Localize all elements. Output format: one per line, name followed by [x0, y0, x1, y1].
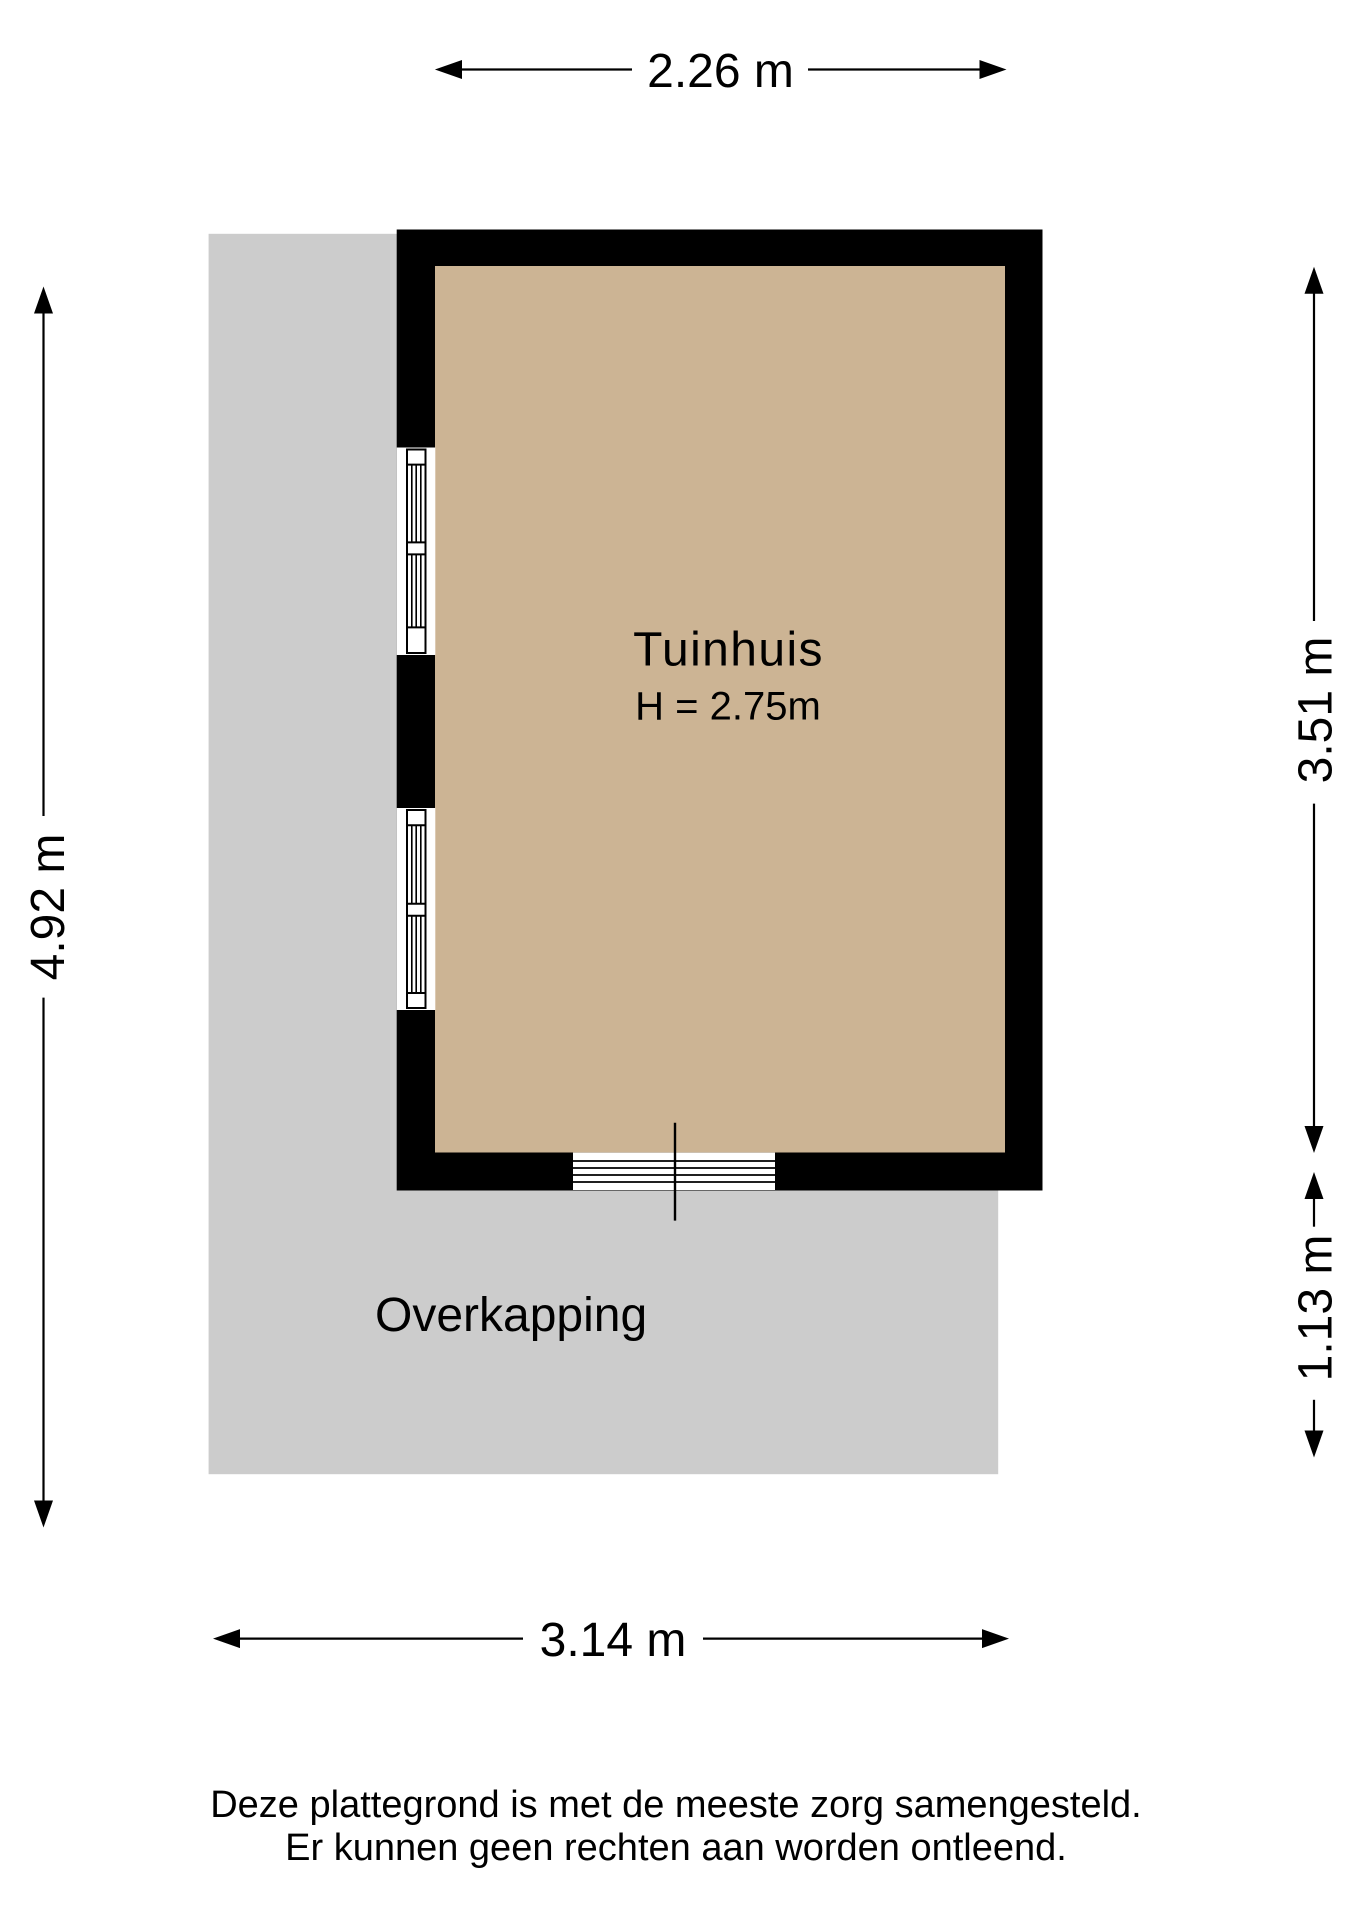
svg-text:3.14 m: 3.14 m [540, 1614, 687, 1667]
svg-text:Er kunnen geen rechten aan wor: Er kunnen geen rechten aan worden ontlee… [285, 1827, 1067, 1869]
svg-text:2.26 m: 2.26 m [647, 45, 794, 98]
svg-text:Deze plattegrond is met de mee: Deze plattegrond is met de meeste zorg s… [210, 1784, 1142, 1826]
svg-text:1.13 m: 1.13 m [1290, 1235, 1343, 1382]
svg-text:4.92 m: 4.92 m [22, 834, 75, 981]
svg-text:3.51 m: 3.51 m [1290, 637, 1343, 784]
svg-text:H = 2.75m: H = 2.75m [635, 684, 821, 728]
svg-text:Tuinhuis: Tuinhuis [633, 624, 824, 677]
svg-text:Overkapping: Overkapping [375, 1289, 647, 1342]
